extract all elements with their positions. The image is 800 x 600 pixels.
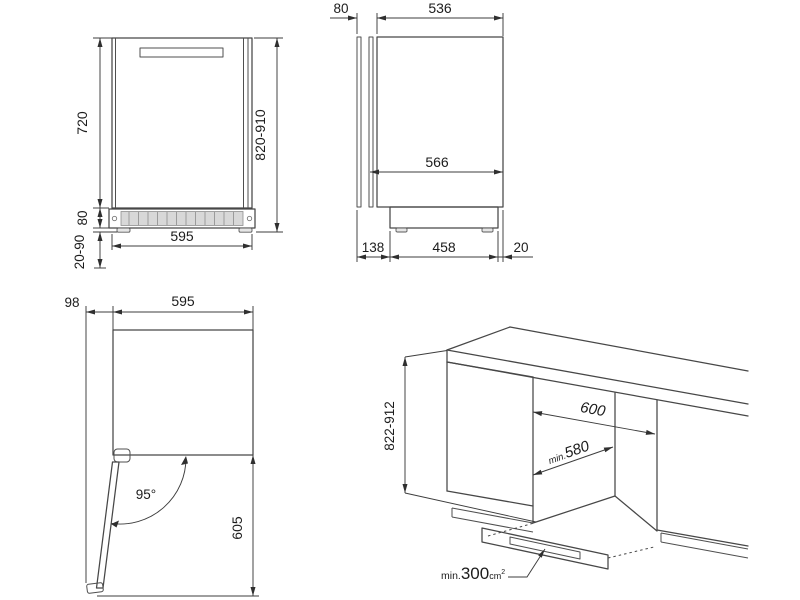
dim-niche-depth: min.580 [545,437,592,467]
dim-plan-width: 595 [171,293,195,309]
dim-rear-clearance: 20 [513,240,528,255]
vent-align-dashed-right [608,547,654,558]
door-panel-inner [369,37,373,207]
right-cabinet-plinth [661,533,748,558]
dim-body-depth: 536 [428,0,452,16]
niche-depth-value: 580 [562,437,592,462]
left-cabinet [447,362,533,532]
vent-panel-outline [482,528,608,569]
foot-right [239,228,252,232]
dim-door-height: 720 [74,111,90,135]
vent-area-unit: cm [489,571,501,581]
vent-area-value: 300 [461,564,489,583]
dim-niche-width: 600 [579,399,607,420]
ventilation-grille [109,209,255,228]
dim-width: 595 [170,228,194,244]
niche-corner-joint [615,496,657,531]
side-view: 80 536 566 138 458 20 [330,0,533,262]
dim-door-thickness: 80 [333,1,348,16]
appliance-side-outline [357,37,503,232]
dim-plinth-height: 80 [75,210,90,225]
appliance-front-outline [112,38,252,208]
plinth-vent-panel [482,523,654,569]
dim-door-angle: 95° [136,487,156,502]
base-recess [390,207,498,228]
niche-floor-edge [533,496,615,523]
dim-overall-depth: 566 [425,154,449,170]
dim-vent-area: min.300cm2 [441,564,505,583]
vent-area-min-prefix: min. [441,570,461,582]
dim-overall-height: 820-910 [252,109,268,161]
front-view: 720 80 20-90 595 [72,38,283,269]
dim-front-clearance: 138 [362,240,385,255]
cabinet-plan-outline [113,330,253,455]
grille-screw-right [247,216,251,220]
dim-niche-height: 822-912 [382,401,397,451]
foot-front [396,228,407,232]
dim-feet-range: 20-90 [72,235,87,270]
dim-door-swing: 605 [229,516,245,540]
grille-slat-area [121,212,243,226]
vent-area-unit-exponent: 2 [501,569,505,576]
foot-left [117,228,130,232]
installation-view: 822-912 600 min.580 min.300cm2 [382,327,748,583]
dim-base-length: 458 [432,239,456,255]
technical-drawing: 720 80 20-90 595 [0,0,800,600]
grille-screw-left [112,216,116,220]
foot-rear [482,228,493,232]
door-front-panel [112,38,252,208]
door-handle-slot [140,48,223,57]
top-dimensions: 98 595 95° 605 [64,293,259,596]
door-panel-outer [357,37,361,207]
installation-dimensions: 822-912 600 min.580 min.300cm2 [382,351,655,584]
left-cabinet-plinth [452,508,533,532]
cabinet-body [377,37,503,207]
right-cabinet [657,400,748,558]
dim-door-projection: 98 [64,295,79,310]
top-view: 98 595 95° 605 [64,293,259,596]
front-dimensions: 720 80 20-90 595 [72,38,283,269]
vent-area-leader-line [508,549,545,577]
